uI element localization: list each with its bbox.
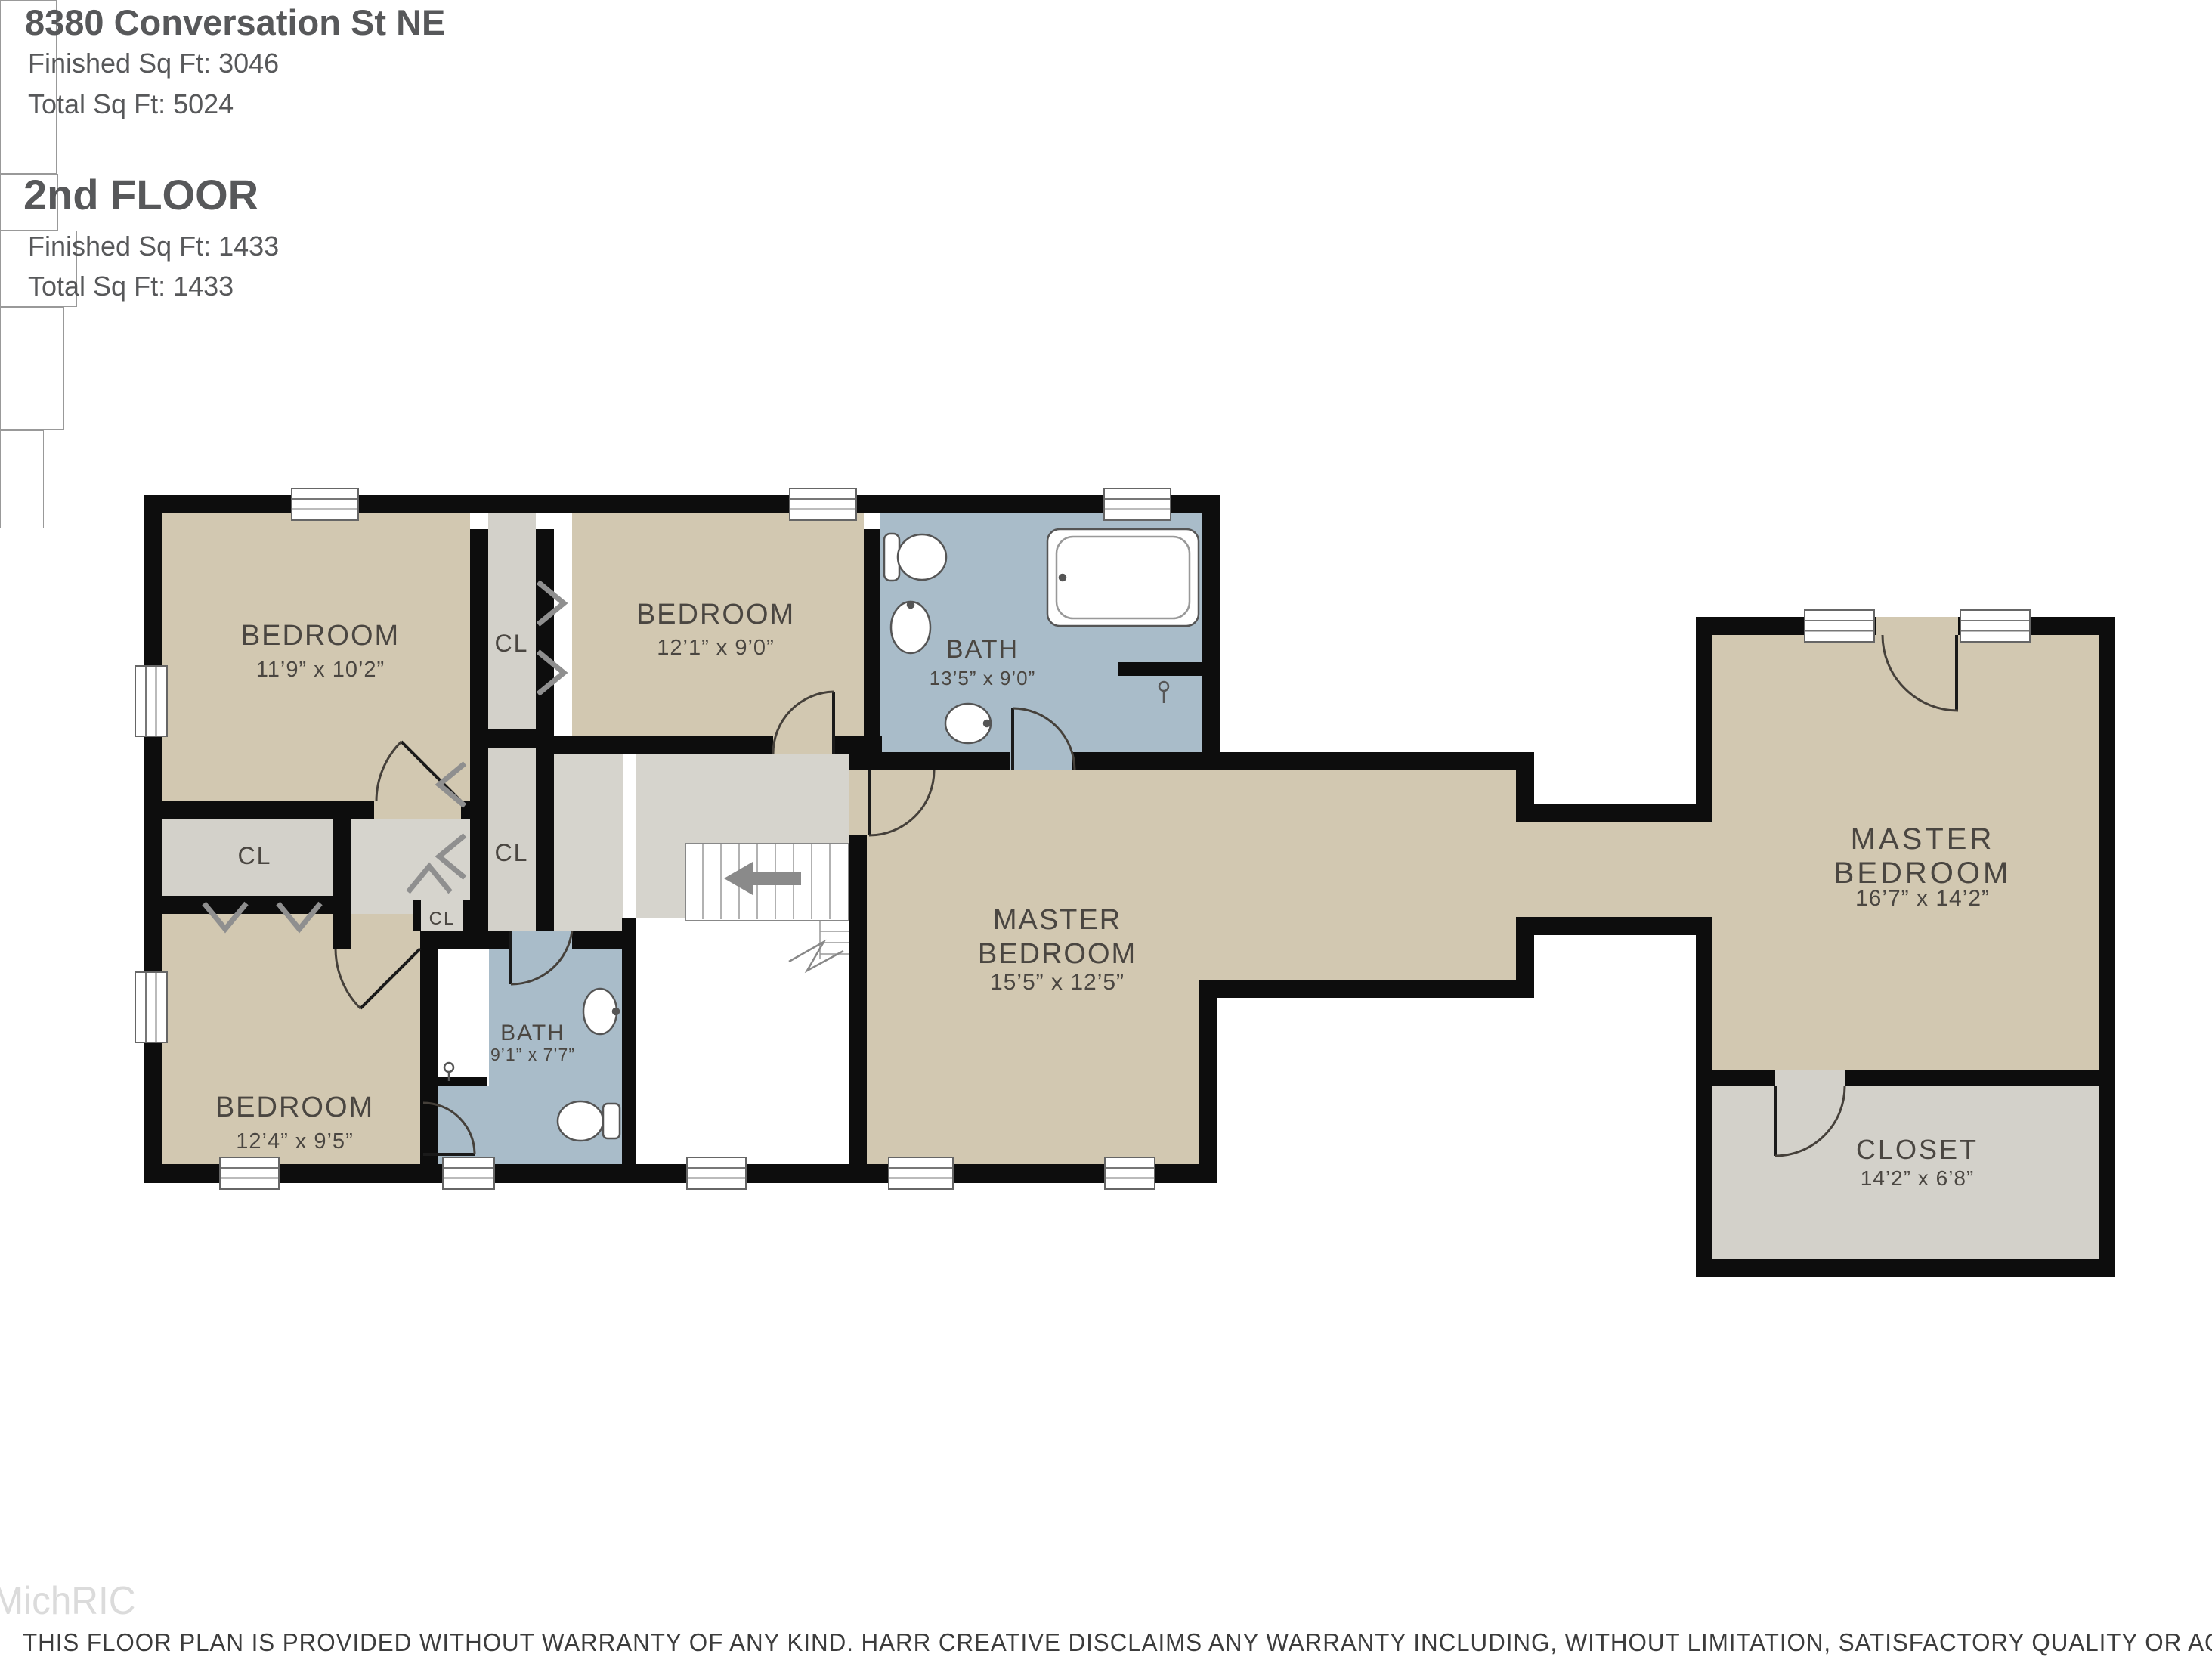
- door-opening: [1876, 617, 1958, 635]
- bath2-vanity: [0, 430, 44, 528]
- wall-segment: [1845, 1070, 2099, 1086]
- door-opening: [849, 770, 867, 835]
- floor-plan-page: { "header": { "address": "8380 Conversat…: [0, 0, 2212, 1652]
- total-sqft: Total Sq Ft: 5024: [28, 88, 234, 120]
- wall-segment: [420, 949, 438, 1164]
- wall-segment: [864, 529, 880, 754]
- small-closet-label: CL: [429, 909, 456, 930]
- wall-segment: [1534, 804, 1696, 822]
- window: [219, 1157, 280, 1190]
- wall-segment: [1712, 1070, 1775, 1086]
- wall-segment: [413, 940, 471, 947]
- door-opening: [773, 736, 835, 754]
- closet-strip-top-label: CL: [495, 630, 529, 658]
- wall-segment: [1696, 917, 1712, 1275]
- wall-segment: [470, 529, 488, 931]
- wall-segment: [144, 495, 162, 1183]
- bedroom3-label: BEDROOM: [215, 1092, 374, 1124]
- wall-segment: [622, 918, 636, 1164]
- bedroom3-floor-2: [351, 949, 420, 1164]
- closet-strip-bottom-label: CL: [495, 839, 529, 867]
- master-center-label-2: BEDROOM: [978, 938, 1137, 971]
- closet-right-label: CLOSET: [1856, 1134, 1978, 1166]
- door-opening: [1696, 822, 1712, 917]
- floor-title: 2nd FLOOR: [23, 170, 258, 219]
- hall-floor-top: [636, 754, 849, 843]
- stairwell-void: [636, 918, 849, 1164]
- closet-strip-top-floor: [488, 513, 536, 729]
- wall-segment: [1696, 635, 1712, 822]
- bedroom2-dims: 12’1” x 9’0”: [657, 636, 774, 661]
- master-center-label-1: MASTER: [993, 904, 1121, 937]
- bath2-niche: [0, 307, 64, 430]
- hall-floor-beside-stairs: [636, 843, 685, 918]
- finished-sqft-total: Finished Sq Ft: 3046: [28, 48, 279, 79]
- wall-segment: [333, 819, 351, 949]
- wall-segment: [1202, 752, 1534, 770]
- master-right-label-1: MASTER: [1851, 822, 1995, 856]
- wall-segment: [849, 752, 1010, 770]
- window: [1960, 609, 2031, 643]
- floor-total-sqft: Total Sq Ft: 1433: [28, 271, 234, 302]
- bath1-label: BATH: [946, 635, 1019, 664]
- bath2-dims: 9’1” x 7’7”: [490, 1045, 575, 1065]
- hall-closet-label: CL: [238, 842, 272, 870]
- wall-segment: [1516, 917, 1696, 935]
- wall-segment: [1072, 752, 1202, 770]
- hall-floor-mid: [554, 754, 623, 931]
- window: [888, 1157, 954, 1190]
- window: [1103, 488, 1171, 521]
- wall-segment: [1118, 662, 1202, 676]
- window: [442, 1157, 495, 1190]
- window: [1804, 609, 1875, 643]
- bath1-floor: [880, 513, 1202, 752]
- door-opening: [1010, 752, 1072, 770]
- watermark: MichRIC: [0, 1578, 135, 1624]
- bedroom3-dims: 12’4” x 9’5”: [236, 1129, 353, 1154]
- wall-segment: [1199, 980, 1534, 998]
- master-center-dims: 15’5” x 12’5”: [990, 970, 1125, 996]
- door-opening: [374, 801, 461, 819]
- wall-segment: [1199, 998, 1217, 1164]
- wall-segment: [1516, 752, 1534, 822]
- window: [686, 1157, 747, 1190]
- corridor-floor: [1516, 822, 1712, 917]
- staircase: [685, 843, 849, 921]
- bedroom1-dims: 11’9” x 10’2”: [256, 658, 385, 683]
- wall-segment: [2099, 617, 2115, 1277]
- wall-segment: [144, 896, 351, 914]
- door-opening: [351, 931, 420, 949]
- master-center-floor-2: [1199, 770, 1516, 980]
- disclaimer-text: THIS FLOOR PLAN IS PROVIDED WITHOUT WARR…: [23, 1628, 2212, 1657]
- bath2-label: BATH: [500, 1021, 565, 1046]
- floor-finished-sqft: Finished Sq Ft: 1433: [28, 231, 279, 262]
- bath1-dims: 13’5” x 9’0”: [930, 667, 1036, 690]
- door-opening: [1775, 1070, 1845, 1086]
- faucet-icon: [444, 1063, 453, 1072]
- address-title: 8380 Conversation St NE: [25, 2, 445, 43]
- wall-segment: [420, 1077, 487, 1086]
- wall-segment: [1696, 1259, 2115, 1277]
- wall-segment: [144, 1164, 1217, 1183]
- bedroom1-label: BEDROOM: [241, 620, 400, 652]
- wall-segment: [554, 736, 773, 754]
- window: [1104, 1157, 1155, 1190]
- window: [135, 665, 168, 737]
- master-right-dims: 16’7” x 14’2”: [1855, 886, 1990, 912]
- window: [789, 488, 857, 521]
- wall-segment: [849, 835, 867, 1164]
- window: [291, 488, 359, 521]
- bedroom2-label: BEDROOM: [636, 599, 795, 631]
- closet-right-dims: 14’2” x 6’8”: [1861, 1166, 1975, 1191]
- wall-segment: [536, 529, 554, 931]
- wall-segment: [488, 729, 536, 748]
- door-opening: [510, 931, 572, 949]
- wall-segment: [463, 900, 471, 940]
- window: [135, 971, 168, 1043]
- wall-segment: [1202, 495, 1220, 770]
